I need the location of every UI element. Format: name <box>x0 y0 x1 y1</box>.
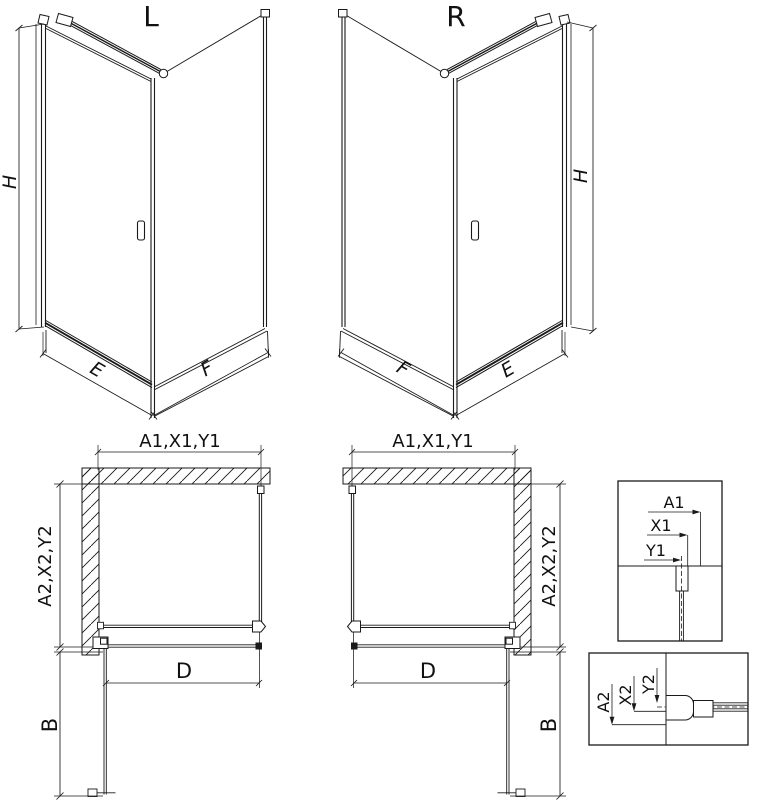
door-open-plan <box>498 649 526 797</box>
swing-dim-label: B <box>537 718 561 732</box>
left-plan-view: A1,X1,Y1 <box>35 431 270 800</box>
detail-a1-label: A1 <box>663 493 684 512</box>
height-dim-label: H <box>0 175 21 189</box>
wall-top <box>82 468 270 484</box>
wall-profile <box>559 15 570 328</box>
side-dim-label: F <box>393 357 414 382</box>
detail-box-width: A1 X1 Y1 <box>618 481 722 641</box>
right-3d-view: R <box>338 0 597 420</box>
wall-profile-section <box>676 566 688 591</box>
wall-right <box>514 468 531 655</box>
detail-box-depth: A2 X2 Y2 <box>589 653 748 745</box>
left-3d-view: L <box>0 0 271 420</box>
profile-clamp-section <box>694 701 714 718</box>
bar-wall-mount <box>535 14 552 27</box>
side-panel-plan <box>348 486 361 632</box>
support-bar-plan <box>98 622 253 629</box>
corner-post <box>454 78 458 418</box>
corner-post <box>151 78 155 418</box>
corner-foot-block <box>256 643 263 650</box>
bar-connector <box>159 69 167 77</box>
corner-foot-block <box>351 643 358 650</box>
handle-plan <box>88 789 97 797</box>
door-pivot-hinge <box>93 637 108 649</box>
door-pivot-hinge <box>505 637 520 649</box>
corner-hinge-block <box>253 621 266 632</box>
bar-connector <box>440 69 448 77</box>
plan-width-dim-label: A1,X1,Y1 <box>139 431 220 452</box>
side-panel-plan <box>253 486 266 632</box>
door-glass-panel <box>457 26 562 82</box>
front-dim-label: E <box>497 357 518 382</box>
side-dim-label: F <box>197 356 218 381</box>
variant-label-right: R <box>446 0 465 33</box>
wall-top <box>343 468 531 484</box>
door-glass-panel <box>46 26 151 82</box>
front-dim-label: E <box>86 357 107 382</box>
height-dim-label: H <box>570 169 592 183</box>
detail-x1-label: X1 <box>650 516 671 535</box>
wall-profile <box>38 15 49 328</box>
plan-width-dim-label: A1,X1,Y1 <box>392 431 473 452</box>
detail-x2-label: X2 <box>616 684 635 705</box>
wall-left <box>82 468 99 655</box>
plan-depth-dim-label: A2,X2,Y2 <box>35 525 56 606</box>
door-closed-plan <box>357 645 505 647</box>
detail-y1-label: Y1 <box>645 541 666 560</box>
door-closed-plan <box>108 645 256 647</box>
side-panel <box>339 10 455 388</box>
variant-label-left: L <box>143 0 159 33</box>
door-dim-label: D <box>420 659 436 683</box>
bar-wall-mount <box>56 14 73 27</box>
detail-a2-label: A2 <box>594 691 613 712</box>
support-bar-plan <box>361 622 516 629</box>
corner-hinge-block <box>348 621 361 632</box>
door-handle <box>472 221 479 240</box>
wall-profile-section <box>666 696 694 721</box>
door-open-plan <box>88 649 116 797</box>
technical-drawing-page: L <box>0 0 760 800</box>
swing-dim-label: B <box>38 718 62 732</box>
plan-depth-dim-label: A2,X2,Y2 <box>539 525 560 606</box>
right-plan-view: A1,X1,Y1 <box>343 431 566 800</box>
side-panel <box>154 10 270 388</box>
shower-enclosure-diagram: L <box>0 0 760 800</box>
door-dim-label: D <box>176 659 192 683</box>
detail-y2-label: Y2 <box>639 674 658 695</box>
handle-plan <box>516 789 525 797</box>
door-handle <box>138 221 145 240</box>
